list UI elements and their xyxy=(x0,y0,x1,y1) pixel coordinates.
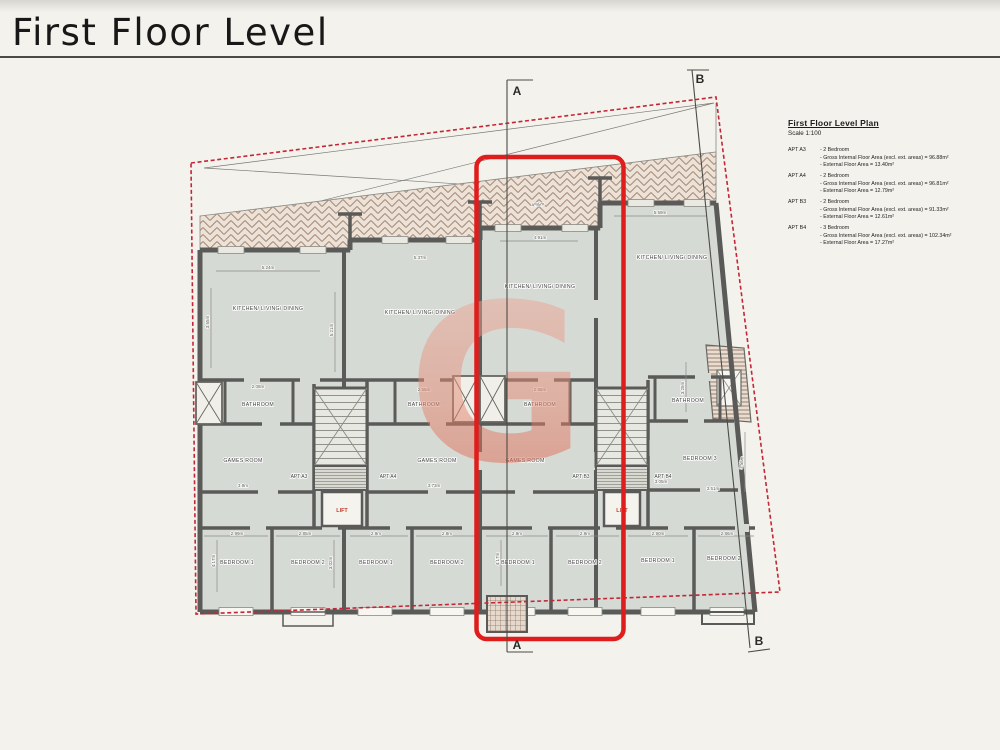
dim-label: 4.17m xyxy=(495,552,500,565)
lift-a: LIFT xyxy=(322,492,362,526)
room-label: KITCHEN/ LIVING/ DINING xyxy=(637,255,708,261)
room-label: GAMES ROOM xyxy=(223,458,262,464)
room-label: BEDROOM 2 xyxy=(707,556,741,562)
room-label: BEDROOM 2 xyxy=(568,560,602,566)
dim-label: 5.24m xyxy=(262,265,275,270)
room-label: BEDROOM 1 xyxy=(220,560,254,566)
dim-label: 2.9m xyxy=(580,531,590,536)
floor-plan-drawing: LIFT LIFT KITCHEN/ LIVING/ DINING KITCHE… xyxy=(0,0,1000,750)
dim-label: 3.05m xyxy=(655,479,668,484)
watermark-letter: G xyxy=(408,259,587,512)
lift-label: LIFT xyxy=(336,508,348,514)
dim-label: 2.85m xyxy=(299,531,312,536)
dim-label: 2.9m xyxy=(371,531,381,536)
watermark-logo: G xyxy=(408,259,587,512)
dim-label: 2.9m xyxy=(512,531,522,536)
room-label: BATHROOM xyxy=(672,398,704,404)
dim-label: 4.91m xyxy=(534,235,547,240)
apartment-label: APT A3 xyxy=(291,474,308,480)
dim-label: 5.21m xyxy=(329,323,334,336)
dim-label: 2.9m xyxy=(442,531,452,536)
room-label: BEDROOM 1 xyxy=(359,560,393,566)
dim-label: 3.51m xyxy=(707,486,720,491)
dim-label: 5.59m xyxy=(654,210,667,215)
dim-label: 3.9m xyxy=(238,483,248,488)
section-marker-b-bottom: B xyxy=(755,634,764,648)
dim-label: 2.08m xyxy=(252,384,265,389)
dim-label: 3.55m xyxy=(205,315,210,328)
dim-label: 2.99m xyxy=(231,531,244,536)
room-label: BEDROOM 3 xyxy=(683,456,717,462)
room-label: KITCHEN/ LIVING/ DINING xyxy=(233,306,304,312)
apartment-label: APT A4 xyxy=(380,474,397,480)
room-label: BATHROOM xyxy=(242,402,274,408)
stair-core-a xyxy=(314,388,367,490)
section-marker-b-top: B xyxy=(696,72,705,86)
dim-label: 3.25m xyxy=(680,381,685,394)
dim-label: 3.02m xyxy=(328,556,333,569)
dim-label: 3.55m xyxy=(738,456,744,469)
room-label: BEDROOM 1 xyxy=(641,558,675,564)
section-marker-a-top: A xyxy=(513,84,522,98)
room-label: BEDROOM 2 xyxy=(430,560,464,566)
dim-label: 2.90m xyxy=(652,531,665,536)
room-label: BEDROOM 2 xyxy=(291,560,325,566)
section-marker-a-bottom: A xyxy=(513,638,522,652)
dim-label: 4.17m xyxy=(211,554,216,567)
dim-label: 2.86m xyxy=(721,531,734,536)
room-label: BEDROOM 1 xyxy=(501,560,535,566)
